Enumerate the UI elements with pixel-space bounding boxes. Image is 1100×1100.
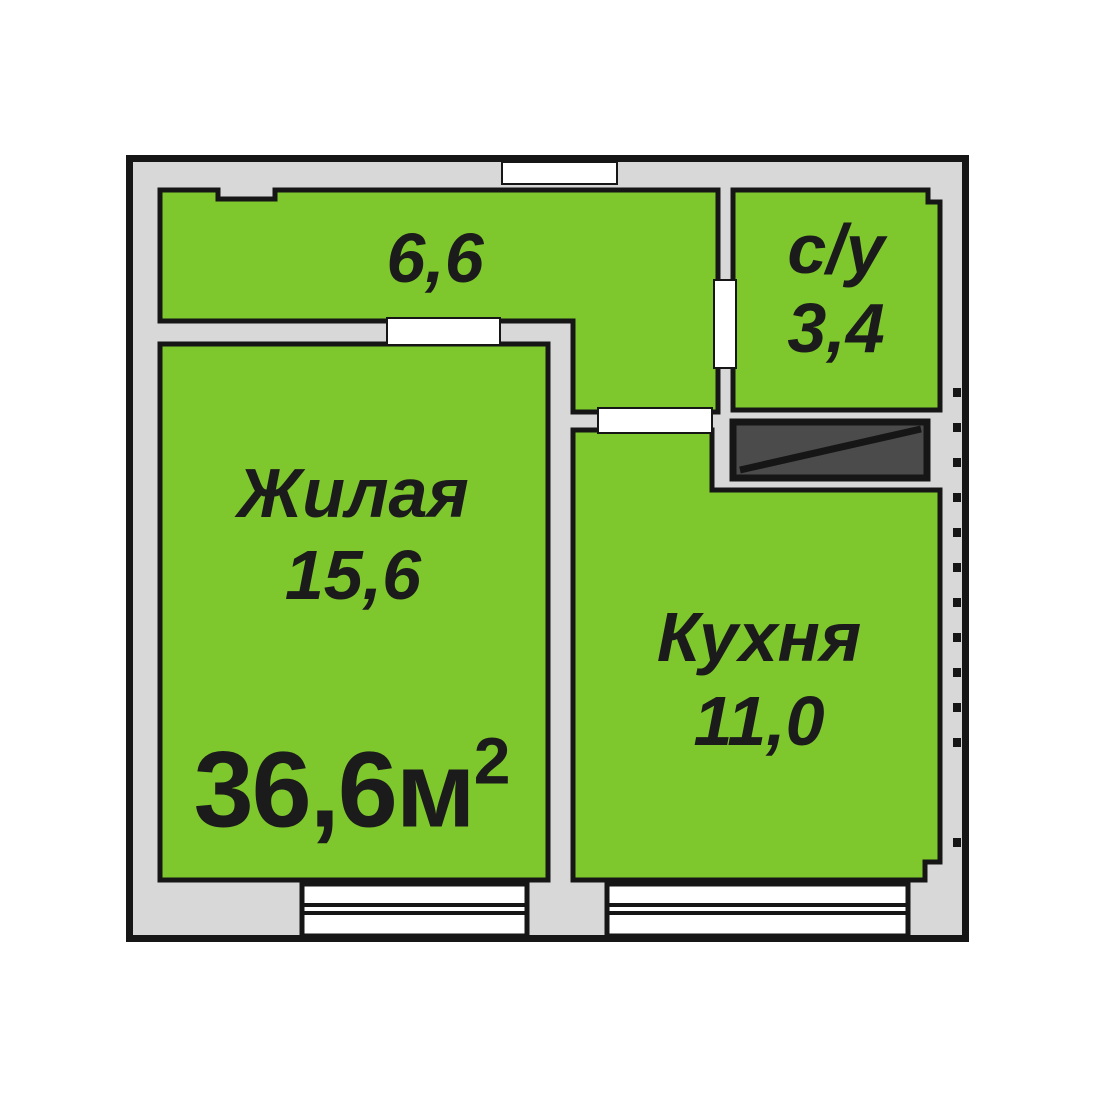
kitchen-window: [607, 884, 908, 936]
kitchen-area-label: 11,0: [657, 679, 861, 763]
kitchen-name-label: Кухня: [657, 595, 861, 679]
bathroom-label: с/у 3,4: [787, 210, 884, 368]
entrance-door-opening: [502, 162, 617, 184]
living-label: Жилая 15,6: [237, 452, 468, 616]
total-area-value: 36,6м: [194, 729, 474, 850]
living-window: [302, 884, 527, 936]
vent-shaft: [733, 422, 927, 478]
kitchen-door-opening: [598, 408, 712, 433]
total-area-label: 36,6м2: [194, 727, 509, 852]
floor-plan-drawing: [0, 0, 1100, 1100]
living-name-label: Жилая: [237, 452, 468, 534]
living-door-opening: [387, 318, 500, 345]
hallway-area-label: 6,6: [386, 218, 483, 298]
bathroom-name-label: с/у: [787, 210, 884, 289]
living-area-label: 15,6: [237, 534, 468, 616]
floor-plan-canvas: 6,6 с/у 3,4 Жилая 15,6 Кухня 11,0 36,6м2: [0, 0, 1100, 1100]
kitchen-label: Кухня 11,0: [657, 595, 861, 763]
bathroom-door-opening: [714, 280, 736, 368]
bathroom-area-label: 3,4: [787, 289, 884, 368]
total-area-superscript: 2: [474, 724, 509, 798]
